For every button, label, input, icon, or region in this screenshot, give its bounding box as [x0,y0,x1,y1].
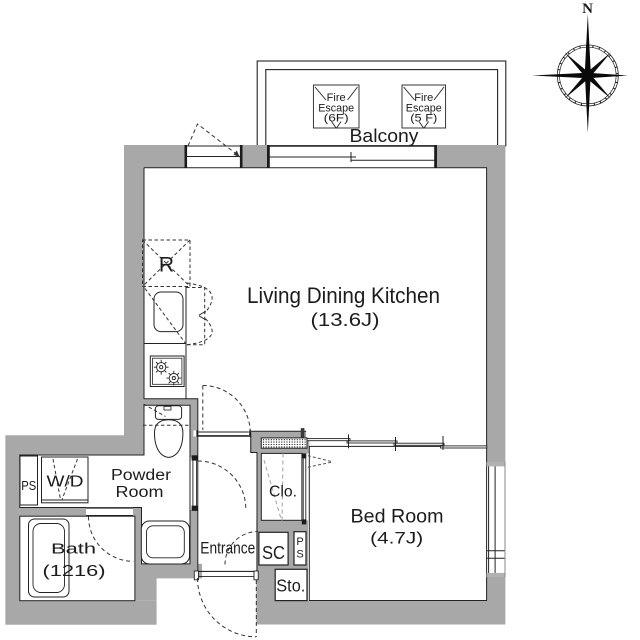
svg-text:S: S [296,549,303,561]
svg-text:(1216): (1216) [43,563,106,580]
svg-text:Powder: Powder [111,467,171,484]
svg-text:Clo.: Clo. [269,484,297,501]
svg-text:(4.7J): (4.7J) [370,529,423,548]
svg-text:Bath: Bath [51,541,96,558]
svg-text:W/D: W/D [47,474,84,491]
svg-text:PS: PS [21,478,36,493]
svg-text:(13.6J): (13.6J) [311,310,380,330]
svg-text:(6F): (6F) [324,113,349,125]
svg-text:Entrance: Entrance [200,540,255,558]
svg-text:R: R [159,254,174,277]
svg-text:Room: Room [116,484,164,501]
svg-text:N: N [582,1,593,17]
svg-text:Bed Room: Bed Room [351,506,444,528]
svg-text:P: P [296,536,303,548]
svg-text:(5 F): (5 F) [410,113,437,125]
svg-text:Sto.: Sto. [276,576,305,596]
svg-text:SC: SC [262,543,285,563]
svg-text:Living Dining Kitchen: Living Dining Kitchen [247,283,440,308]
svg-text:Balcony: Balcony [350,125,420,146]
